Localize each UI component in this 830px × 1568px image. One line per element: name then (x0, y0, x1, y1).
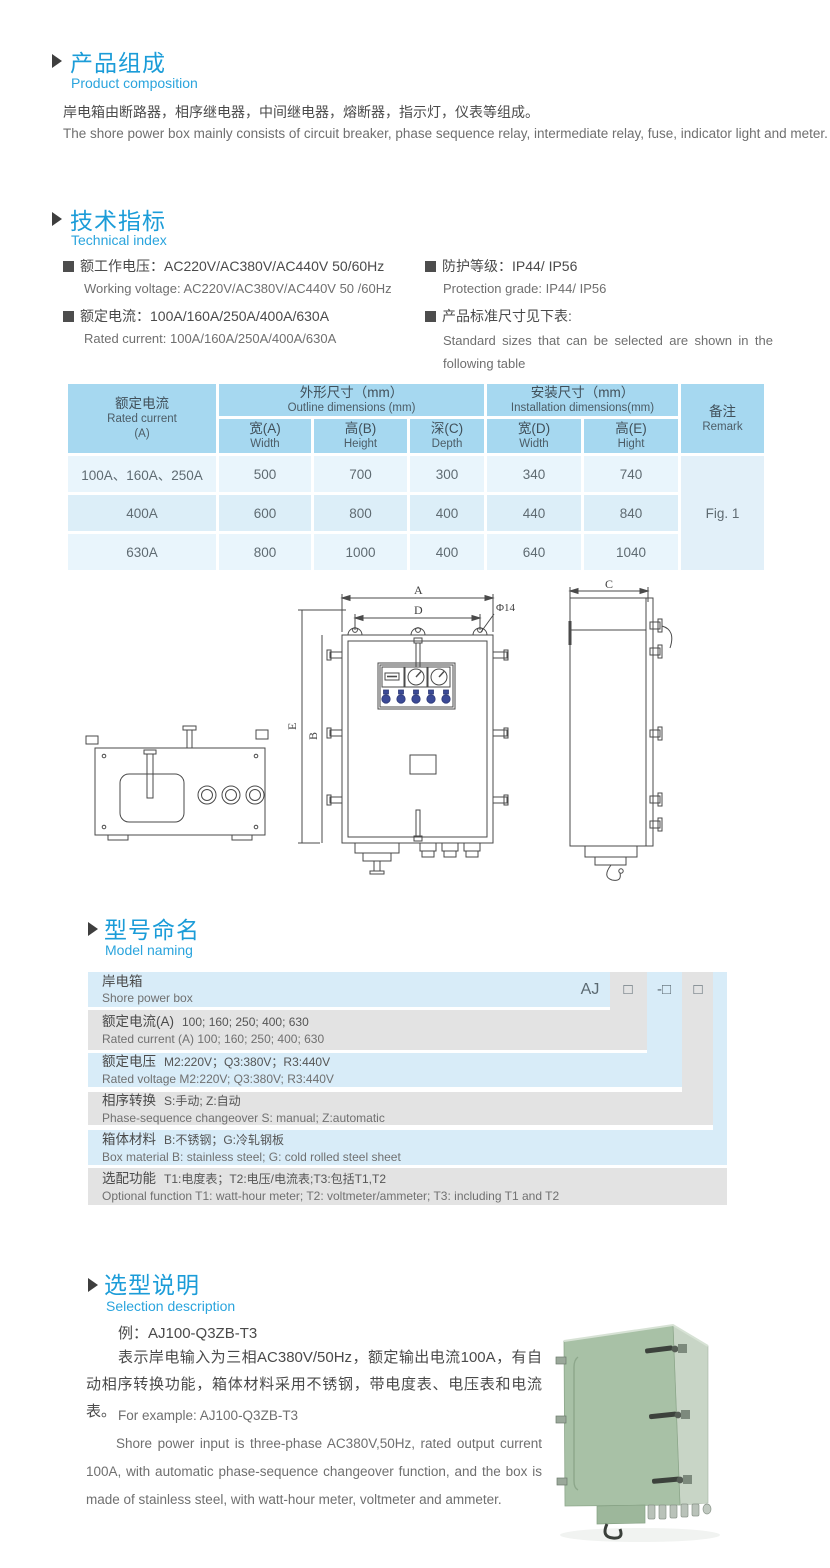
section-title-en: Model naming (105, 942, 193, 958)
dim-label-a: A (414, 583, 423, 597)
dim-label-dia: Φ14 (496, 602, 516, 614)
product-photo (545, 1283, 815, 1568)
selection-paragraph-en: Shore power input is three-phase AC380V,… (86, 1430, 542, 1514)
spec-standard-sizes: 产品标准尺寸见下表: (425, 306, 572, 326)
cell-current: 100A、160A、250A (68, 456, 216, 492)
naming-row-phase-changeover: 相序转换S:手动; Z:自动 Phase-sequence changeover… (88, 1092, 713, 1125)
table-row: 100A、160A、250A 500 700 300 340 740 Fig. … (68, 456, 764, 492)
composition-body-cn: 岸电箱由断路器，相序继电器，中间继电器，熔断器，指示灯，仪表等组成。 (63, 102, 539, 122)
composition-body-en: The shore power box mainly consists of c… (63, 126, 828, 141)
table-row: 400A 600 800 400 440 840 (68, 495, 764, 531)
model-code-box1: □ (612, 972, 644, 1007)
cell-current: 630A (68, 534, 216, 570)
naming-row-rated-voltage: 额定电压M2:220V；Q3:380V；R3:440V Rated voltag… (88, 1053, 682, 1087)
dim-label-b: B (306, 732, 320, 740)
section-arrow-icon (88, 1278, 98, 1292)
catalog-page: 产品组成 Product composition 岸电箱由断路器，相序继电器，中… (0, 0, 830, 1568)
spec-standard-sizes-en: Standard sizes that can be selected are … (443, 329, 773, 375)
dimensions-table: 额定电流 Rated current (A) 外形尺寸（mm） Outline … (65, 381, 767, 573)
section-title-en: Selection description (106, 1298, 235, 1314)
section-title-cn: 型号命名 (104, 911, 200, 945)
model-naming-table: 岸电箱 Shore power box 额定电流(A)100; 160; 250… (88, 972, 727, 1205)
spec-protection-grade: 防护等级：IP44/ IP56 (425, 256, 577, 276)
table-row: 630A 800 1000 400 640 1040 (68, 534, 764, 570)
naming-row-box-material: 箱体材料B:不锈钢；G:冷轧钢板 Box material B: stainle… (88, 1130, 727, 1165)
side-view-drawing (570, 587, 672, 880)
section-title-en: Technical index (71, 232, 167, 248)
technical-drawings: A D Φ14 E B C (80, 578, 780, 890)
col-header-width-a: 宽(A)Width (219, 419, 311, 453)
model-code-prefix: AJ (574, 972, 606, 1007)
spec-working-voltage: 额工作电压：AC220V/AC380V/AC440V 50/60Hz (63, 256, 384, 276)
naming-row-rated-current: 额定电流(A)100; 160; 250; 400; 630 Rated cur… (88, 1010, 647, 1050)
col-header-rated-current: 额定电流 Rated current (A) (68, 384, 216, 453)
col-group-outline-dimensions: 外形尺寸（mm） Outline dimensions (mm) (219, 384, 484, 416)
section-title-cn: 选型说明 (104, 1266, 200, 1300)
selection-example-en: For example: AJ100-Q3ZB-T3 (118, 1408, 298, 1423)
dim-label-e: E (285, 723, 299, 730)
col-header-remark: 备注 Remark (681, 384, 764, 453)
section-title-cn: 技术指标 (70, 202, 166, 236)
model-code-box3: □ (682, 972, 714, 1007)
section-arrow-icon (52, 212, 62, 226)
bullet-square-icon (63, 261, 74, 272)
section-title-cn: 产品组成 (70, 44, 166, 78)
cell-current: 400A (68, 495, 216, 531)
front-view-drawing (298, 594, 508, 874)
col-header-height-b: 高(B)Height (314, 419, 407, 453)
col-group-installation-dimensions: 安装尺寸（mm） Installation dimensions(mm) (487, 384, 678, 416)
bullet-square-icon (425, 261, 436, 272)
bullet-square-icon (425, 311, 436, 322)
spec-working-voltage-en: Working voltage: AC220V/AC380V/AC440V 50… (84, 281, 392, 296)
bottom-view-drawing (86, 726, 268, 840)
naming-row-shore-power-box: 岸电箱 Shore power box (88, 972, 610, 1007)
naming-row-optional-function: 选配功能T1:电度表；T2:电压/电流表;T3:包括T1,T2 Optional… (88, 1168, 727, 1205)
selection-example-cn: 例：AJ100-Q3ZB-T3 (118, 1322, 257, 1343)
section-arrow-icon (52, 54, 62, 68)
section-title-en: Product composition (71, 75, 198, 91)
cell-remark: Fig. 1 (681, 456, 764, 570)
spec-rated-current-en: Rated current: 100A/160A/250A/400A/630A (84, 331, 336, 346)
model-code-box2: -□ (648, 972, 680, 1007)
spec-rated-current: 额定电流：100A/160A/250A/400A/630A (63, 306, 329, 326)
code-column-material (713, 972, 727, 1130)
section-arrow-icon (88, 922, 98, 936)
bullet-square-icon (63, 311, 74, 322)
dim-label-c: C (605, 578, 613, 591)
col-header-height-e: 高(E)Hight (584, 419, 678, 453)
col-header-width-d: 宽(D)Width (487, 419, 581, 453)
col-header-depth-c: 深(C)Depth (410, 419, 484, 453)
dim-label-d: D (414, 603, 423, 617)
spec-protection-grade-en: Protection grade: IP44/ IP56 (443, 281, 606, 296)
